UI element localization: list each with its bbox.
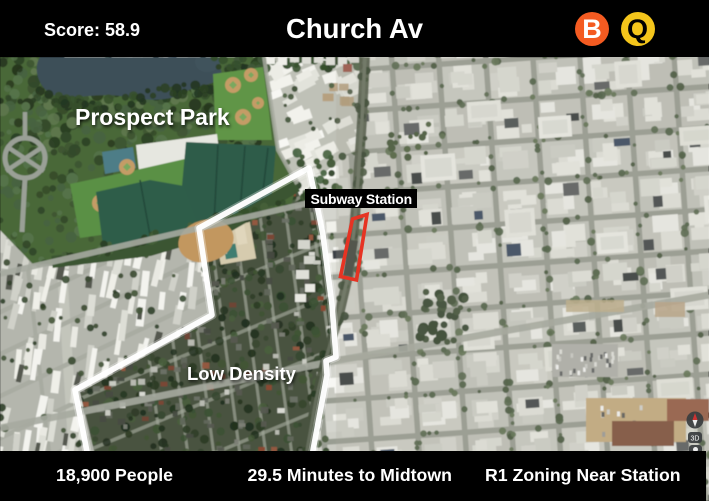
svg-text:3D: 3D [691,436,700,443]
